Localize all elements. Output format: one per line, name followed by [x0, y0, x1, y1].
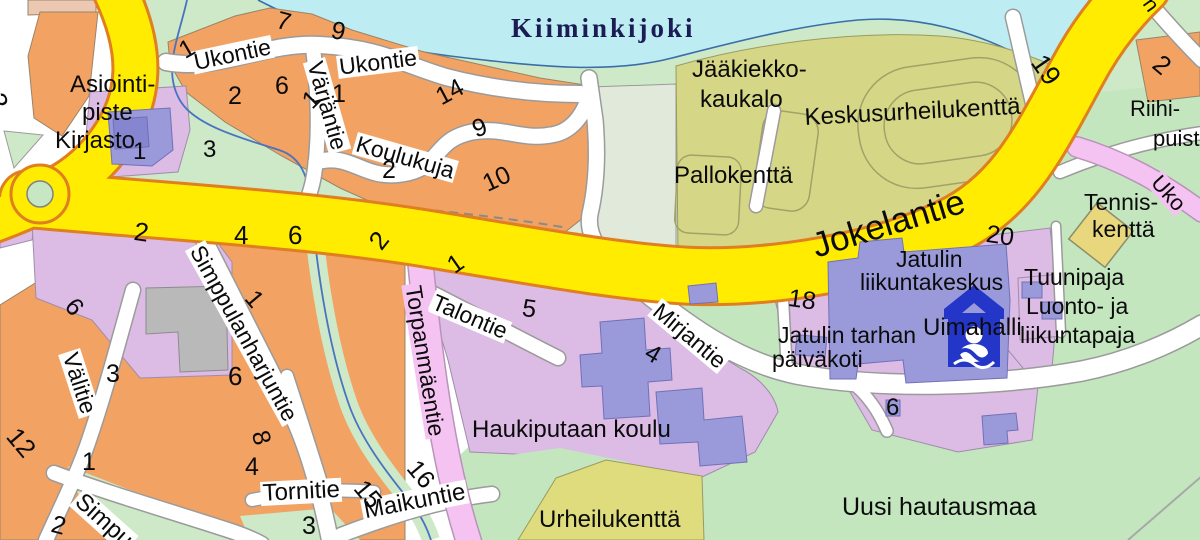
area-label-asiointi: Asiointi- — [70, 73, 155, 97]
house-number: 6 — [275, 74, 289, 99]
area-label-puist: puist — [1153, 128, 1199, 150]
area-label-haukiputaan-koulu: Haukiputaan koulu — [472, 418, 671, 442]
house-number: 19 — [1026, 50, 1065, 90]
street-label-ukontie: Ukontie — [190, 35, 275, 75]
area-label-keskusurheilukentta: Keskusurheilukenttä — [804, 95, 1021, 130]
house-number: 9 — [329, 18, 348, 45]
area-label-urheilukentta: Urheilukenttä — [539, 508, 680, 532]
street-label-tornitie: Tornitie — [260, 478, 343, 506]
street-label-valitie: Välitie — [58, 348, 100, 419]
house-number: 2 — [1148, 50, 1176, 79]
area-label-jaakiekko: Jääkiekko- — [692, 58, 807, 82]
area-label-jatulin: Jatulin — [896, 248, 962, 271]
house-number: 6 — [886, 396, 899, 420]
house-number: 3 — [106, 362, 120, 387]
street-label-talontie: Talontie — [427, 290, 513, 344]
house-number: 1 — [175, 35, 200, 64]
house-number: 10 — [479, 162, 515, 196]
house-number: 2 — [132, 218, 150, 246]
map-canvas[interactable]: KiiminkijokiAsiointi-pisteKirjasto1Ukont… — [0, 0, 1200, 540]
street-label-simpu: Simpu — [69, 488, 139, 540]
house-number: 4 — [245, 455, 259, 480]
street-label-mirjantie: Mirjantie — [647, 298, 731, 374]
house-number: 7 — [274, 8, 294, 36]
house-number: 1 — [133, 140, 146, 164]
house-number: 4 — [234, 222, 248, 248]
house-number: 18 — [787, 286, 818, 315]
area-label-kaukalo: kaukalo — [700, 88, 783, 112]
street-label-koulukuja: Koulukuja — [352, 132, 459, 183]
house-number: 5 — [521, 296, 538, 323]
area-label-uusi-hautausmaa: Uusi hautausmaa — [842, 495, 1037, 520]
house-number: 2 — [382, 158, 396, 183]
area-label-riihi: Riihi- — [1130, 98, 1180, 120]
partial-label: n — [1139, 0, 1163, 16]
house-number: 9 — [469, 114, 491, 142]
house-number: 12 — [2, 423, 41, 462]
house-number: 2 — [49, 512, 69, 540]
house-number: 4 — [641, 340, 666, 369]
house-number: 2 — [228, 84, 242, 109]
area-label-paivakoti: päiväkoti — [772, 348, 863, 371]
house-number: 1 — [443, 250, 469, 278]
house-number: 3 — [203, 138, 216, 162]
area-label-luonto-ja: Luonto- ja — [1026, 295, 1128, 318]
house-number: 2 — [0, 90, 12, 112]
house-number: 20 — [985, 222, 1016, 251]
house-number: 1 — [82, 450, 96, 475]
area-label-uimahalli: Uimahalli — [923, 316, 1022, 340]
area-label-tennis: Tennis- — [1084, 191, 1158, 214]
house-number: 1 — [240, 286, 268, 313]
area-label-pallokentta: Pallokenttä — [674, 164, 793, 188]
house-number: 6 — [60, 294, 88, 321]
area-label-jatulin-tarhan: Jatulin tarhan — [778, 324, 916, 347]
house-number: 6 — [288, 222, 302, 248]
house-number: 6 — [228, 363, 242, 389]
house-number: 3 — [302, 514, 316, 539]
house-number: 8 — [247, 428, 275, 448]
street-label-ukontie: Ukontie — [336, 46, 420, 79]
house-number: 2 — [364, 227, 393, 254]
area-label-kirjasto: Kirjasto — [55, 129, 135, 153]
water-label-kiiminkijoki: Kiiminkijoki — [511, 15, 696, 42]
area-label-piste: piste — [82, 101, 133, 125]
map-labels-layer: KiiminkijokiAsiointi-pisteKirjasto1Ukont… — [0, 0, 1200, 540]
area-label-tuunipaja: Tuunipaja — [1024, 266, 1124, 289]
area-label-kentta: kenttä — [1092, 218, 1155, 241]
house-number: 1 — [332, 82, 346, 107]
street-label-simppulanharjuntie: Simppulanharjuntie — [185, 240, 303, 427]
house-number: 14 — [432, 75, 468, 110]
area-label-liikuntapaja: liikuntapaja — [1020, 324, 1135, 347]
area-label-liikuntakeskus: liikuntakeskus — [860, 271, 1003, 294]
